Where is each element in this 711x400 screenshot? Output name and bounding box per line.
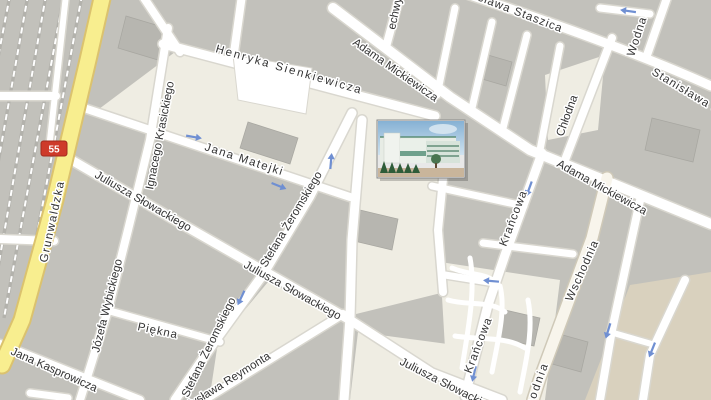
map-canvas[interactable]: Grunwaldzka Henryka Sienkiewicza Adama M… (0, 0, 711, 400)
route-shield-55: 55 (41, 141, 67, 156)
building-photo-image (378, 121, 464, 177)
map-svg: Grunwaldzka Henryka Sienkiewicza Adama M… (0, 0, 711, 400)
route-shield-number: 55 (48, 145, 60, 156)
building-photo-overlay[interactable] (377, 120, 468, 181)
